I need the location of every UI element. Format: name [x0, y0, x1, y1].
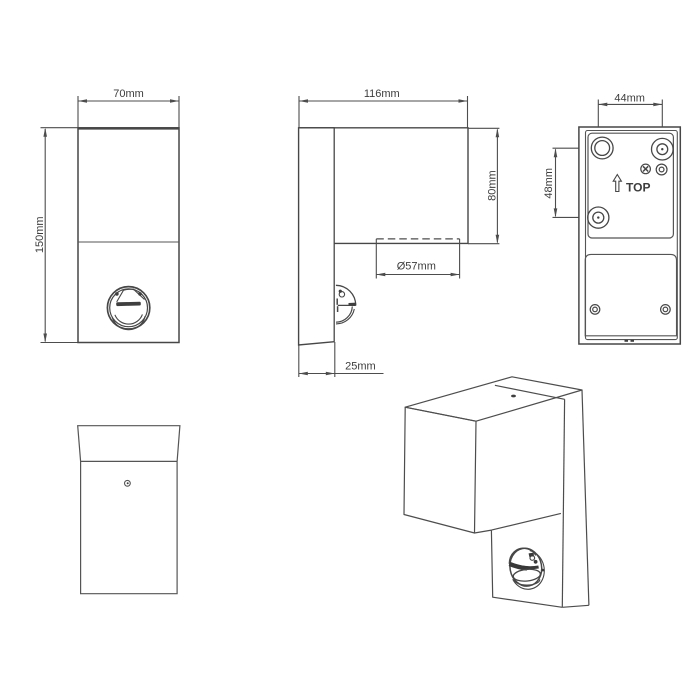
svg-text:150mm: 150mm — [34, 216, 46, 253]
svg-text:44mm: 44mm — [614, 93, 645, 105]
svg-text:TOP: TOP — [626, 181, 650, 195]
svg-text:Ø57mm: Ø57mm — [397, 261, 436, 273]
svg-text:116mm: 116mm — [364, 88, 400, 100]
svg-text:48mm: 48mm — [543, 168, 555, 199]
svg-text:25mm: 25mm — [345, 361, 376, 373]
svg-text:70mm: 70mm — [113, 88, 144, 100]
svg-text:80mm: 80mm — [486, 170, 498, 201]
